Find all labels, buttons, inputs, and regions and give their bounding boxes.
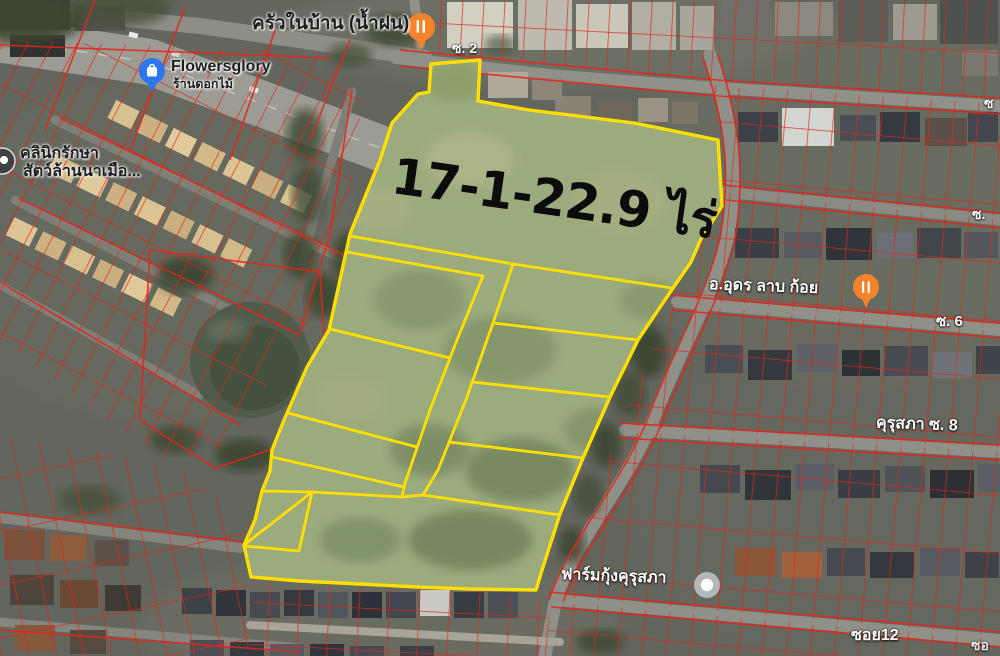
- street-label-soi12: ซอย12: [851, 628, 899, 645]
- poi-label-clinic-line2[interactable]: สัตว์ล้านนาเมือ...: [23, 164, 141, 181]
- street-label-partial-bottom-right: ซอ: [971, 638, 989, 653]
- poi-label-clinic-line1[interactable]: คลินิกรักษา: [20, 146, 99, 163]
- map-viewport[interactable]: 17-1-22.9 ไร่ ครัวในบ้าน (น้ำฝน) Flowers…: [0, 0, 1000, 656]
- street-label-soi2: ซ. 2: [452, 41, 477, 56]
- street-label-partial-right-top: ซ: [984, 96, 994, 111]
- street-label-partial-right-mid: ซ.: [972, 207, 985, 222]
- poi-label-flowersglory[interactable]: Flowersglory: [171, 59, 271, 76]
- street-label-soi8: คุรุสภา ซ. 8: [876, 416, 958, 436]
- street-label-soi6: ซ. 6: [936, 314, 963, 330]
- map-canvas: [0, 0, 1000, 656]
- poi-sublabel-flowersglory[interactable]: ร้านดอกไม้: [173, 78, 233, 91]
- poi-circle-icon[interactable]: [694, 572, 720, 598]
- poi-label-home-kitchen[interactable]: ครัวในบ้าน (น้ำฝน): [252, 14, 409, 34]
